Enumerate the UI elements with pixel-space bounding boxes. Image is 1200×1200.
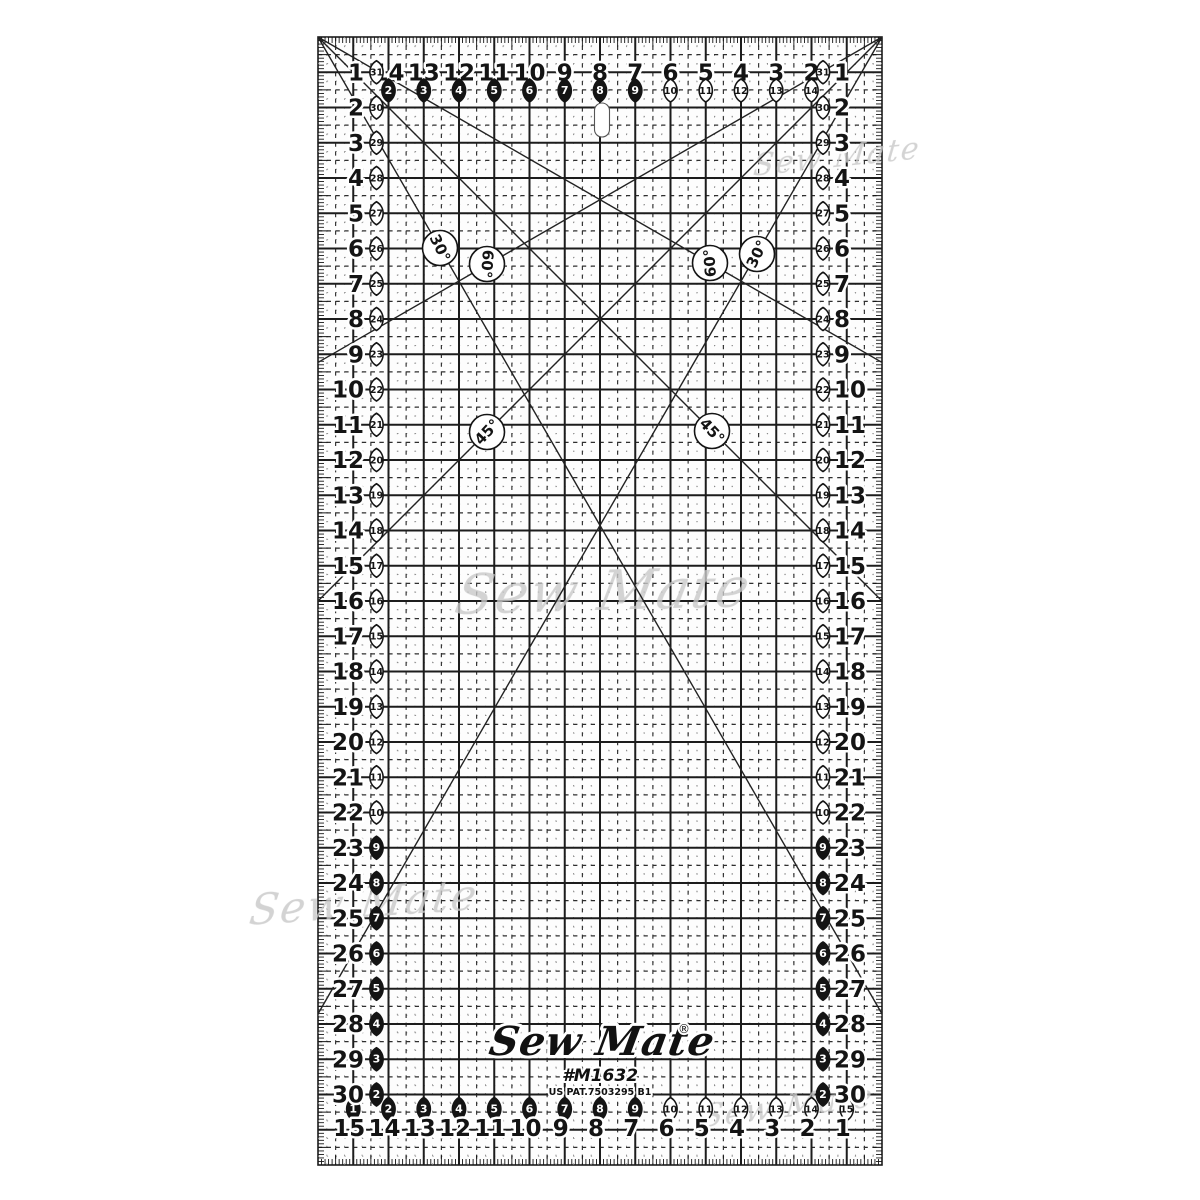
- scale-number: 7: [348, 272, 364, 298]
- badge-value: 20: [816, 455, 830, 466]
- scale-number: 30: [834, 1083, 866, 1109]
- badge-value: 31: [370, 68, 383, 79]
- badge-value: 3: [819, 1053, 827, 1066]
- scale-number: 3: [834, 131, 850, 157]
- badge-value: 4: [455, 1102, 463, 1115]
- scale-number: 20: [332, 730, 364, 756]
- scale-number: 4: [348, 166, 364, 192]
- scale-badge: 10: [370, 801, 384, 824]
- badge-value: 2: [385, 1102, 393, 1115]
- scale-badge: 5: [816, 977, 829, 1000]
- scale-badge: 15: [370, 625, 383, 648]
- scale-badge: 25: [816, 272, 829, 295]
- scale-number: 7: [834, 272, 850, 298]
- scale-number: 5: [834, 201, 850, 227]
- badge-value: 19: [370, 491, 383, 502]
- scale-badge: 19: [370, 484, 383, 507]
- badge-value: 13: [770, 86, 783, 97]
- scale-badge: 2: [370, 1083, 383, 1106]
- badge-value: 17: [816, 561, 829, 572]
- badge-value: 23: [370, 350, 383, 361]
- scale-badge: 11: [370, 766, 383, 789]
- scale-badge: 27: [816, 202, 829, 225]
- scale-badge: 8: [593, 79, 606, 102]
- badge-value: 21: [816, 420, 829, 431]
- scale-badge: 21: [816, 413, 829, 436]
- badge-value: 29: [370, 138, 383, 149]
- badge-value: 14: [805, 86, 819, 97]
- scale-number: 24: [834, 871, 866, 897]
- scale-badge: 4: [816, 1013, 829, 1036]
- badge-value: 10: [664, 1104, 678, 1115]
- badge-value: 12: [734, 1104, 747, 1115]
- badge-value: 14: [370, 667, 384, 678]
- scale-number: 13: [332, 483, 364, 509]
- badge-value: 16: [370, 596, 384, 607]
- badge-value: 27: [816, 209, 829, 220]
- scale-badge: 22: [370, 378, 383, 401]
- scale-number: 22: [834, 801, 866, 827]
- badge-value: 25: [370, 279, 383, 290]
- badge-value: 4: [819, 1017, 827, 1030]
- scale-badge: 14: [370, 660, 384, 683]
- scale-number: 1: [348, 60, 364, 86]
- badge-value: 9: [631, 84, 639, 97]
- scale-number: 30: [332, 1083, 364, 1109]
- scale-number: 28: [332, 1012, 364, 1038]
- badge-value: 24: [816, 314, 830, 325]
- badge-value: 11: [699, 1104, 712, 1115]
- scale-number: 6: [834, 237, 850, 263]
- scale-number: 5: [348, 201, 364, 227]
- scale-number: 9: [834, 342, 850, 368]
- badge-value: 10: [370, 808, 384, 819]
- badge-value: 13: [816, 702, 829, 713]
- scale-badge: 20: [370, 449, 384, 472]
- scale-number: 8: [588, 1116, 604, 1142]
- badge-value: 9: [819, 841, 827, 854]
- scale-badge: 26: [816, 237, 830, 260]
- scale-number: 15: [332, 554, 364, 580]
- angle-badge-60-right: 60°: [693, 246, 728, 281]
- scale-number: 29: [332, 1047, 364, 1073]
- badge-value: 14: [805, 1104, 819, 1115]
- badge-value: 25: [816, 279, 829, 290]
- scale-number: 12: [439, 1116, 471, 1142]
- scale-badge: 10: [816, 801, 830, 824]
- badge-value: 8: [596, 1102, 604, 1115]
- scale-badge: 17: [816, 554, 829, 577]
- scale-number: 2: [799, 1116, 815, 1142]
- scale-number: 14: [368, 1116, 400, 1142]
- scale-badge: 5: [488, 79, 501, 102]
- scale-badge: 31: [370, 61, 383, 84]
- scale-badge: 3: [370, 1048, 383, 1071]
- scale-number: 21: [332, 765, 364, 791]
- badge-value: 2: [373, 1088, 381, 1101]
- scale-badge: 24: [370, 308, 384, 331]
- scale-badge: 4: [370, 1013, 383, 1036]
- badge-value: 26: [370, 244, 384, 255]
- scale-badge: 31: [816, 61, 829, 84]
- scale-number: 13: [834, 483, 866, 509]
- scale-number: 17: [834, 624, 866, 650]
- badge-value: 7: [819, 912, 827, 925]
- scale-badge: 26: [370, 237, 384, 260]
- badge-value: 19: [816, 491, 829, 502]
- scale-number: 2: [834, 96, 850, 122]
- scale-number: 13: [404, 1116, 436, 1142]
- scale-badge: 29: [370, 131, 383, 154]
- scale-badge: 16: [370, 590, 384, 613]
- scale-badge: 6: [523, 79, 536, 102]
- scale-badge: 2: [382, 79, 395, 102]
- scale-number: 14: [332, 519, 364, 545]
- badge-value: 13: [770, 1104, 783, 1115]
- badge-value: 16: [816, 596, 830, 607]
- scale-number: 7: [623, 1116, 639, 1142]
- scale-badge: 13: [816, 695, 829, 718]
- scale-badge: 23: [816, 343, 829, 366]
- patent-number: US PAT.7503295 B1: [549, 1087, 652, 1098]
- scale-badge: 11: [816, 766, 829, 789]
- scale-number: 4: [729, 1116, 745, 1142]
- scale-number: 20: [834, 730, 866, 756]
- scale-badge: 5: [370, 977, 383, 1000]
- badge-value: 2: [385, 84, 393, 97]
- scale-badge: 6: [370, 942, 383, 965]
- scale-number: 25: [332, 906, 364, 932]
- badge-value: 6: [819, 947, 827, 960]
- scale-badge: 2: [816, 1083, 829, 1106]
- badge-value: 5: [819, 982, 827, 995]
- scale-number: 17: [332, 624, 364, 650]
- badge-value: 5: [373, 982, 381, 995]
- scale-number: 27: [332, 977, 364, 1003]
- scale-number: 10: [332, 378, 364, 404]
- scale-badge: 25: [370, 272, 383, 295]
- scale-badge: 22: [816, 378, 829, 401]
- scale-number: 27: [834, 977, 866, 1003]
- scale-number: 19: [834, 695, 866, 721]
- scale-number: 18: [834, 660, 866, 686]
- badge-value: 17: [370, 561, 383, 572]
- scale-badge: 12: [370, 731, 383, 754]
- scale-number: 16: [332, 589, 364, 615]
- badge-value: 23: [816, 350, 829, 361]
- badge-value: 7: [561, 84, 569, 97]
- badge-value: 3: [420, 1102, 428, 1115]
- badge-value: 21: [370, 420, 383, 431]
- badge-value: 8: [596, 84, 604, 97]
- badge-value: 7: [561, 1102, 569, 1115]
- scale-badge: 12: [734, 79, 747, 102]
- scale-number: 2: [348, 96, 364, 122]
- scale-badge: 15: [816, 625, 829, 648]
- scale-number: 3: [348, 131, 364, 157]
- angle-badge-45-left: 45°: [470, 415, 505, 450]
- badge-value: 4: [373, 1017, 381, 1030]
- badge-value: 10: [816, 808, 830, 819]
- angle-badge-45-right: 45°: [695, 414, 730, 449]
- badge-value: 15: [816, 632, 829, 643]
- scale-badge: 6: [816, 942, 829, 965]
- scale-number: 6: [658, 1116, 674, 1142]
- angle-value: 60°: [700, 248, 720, 278]
- scale-number: 28: [834, 1012, 866, 1038]
- scale-badge: 3: [816, 1048, 829, 1071]
- badge-value: 8: [819, 876, 827, 889]
- scale-badge: 9: [629, 79, 642, 102]
- scale-badge: 8: [370, 872, 383, 895]
- badge-value: 4: [455, 84, 463, 97]
- badge-value: 3: [420, 84, 428, 97]
- angle-badge-30-left: 30°: [423, 231, 458, 266]
- angle-value: 60°: [477, 249, 497, 279]
- badge-value: 5: [490, 1102, 498, 1115]
- scale-number: 21: [834, 765, 866, 791]
- badge-value: 2: [819, 1088, 827, 1101]
- badge-value: 11: [370, 773, 383, 784]
- badge-value: 6: [526, 84, 534, 97]
- scale-number: 16: [834, 589, 866, 615]
- scale-badge: 24: [816, 308, 830, 331]
- scale-number: 9: [553, 1116, 569, 1142]
- scale-badge: 28: [816, 167, 830, 190]
- scale-number: 1: [835, 1116, 851, 1142]
- badge-value: 9: [373, 841, 381, 854]
- scale-number: 8: [348, 307, 364, 333]
- scale-number: 10: [834, 378, 866, 404]
- angle-badge-60-left: 60°: [470, 247, 505, 282]
- scale-number: 22: [332, 801, 364, 827]
- badge-value: 22: [816, 385, 829, 396]
- scale-number: 15: [333, 1116, 365, 1142]
- scale-badge: 7: [816, 907, 829, 930]
- scale-number: 23: [332, 836, 364, 862]
- scale-number: 26: [332, 942, 364, 968]
- scale-number: 11: [474, 1116, 506, 1142]
- scale-number: 14: [834, 519, 866, 545]
- registered-mark: ®: [678, 1022, 690, 1036]
- badge-value: 8: [373, 876, 381, 889]
- scale-badge: 9: [816, 836, 829, 859]
- badge-value: 6: [373, 947, 381, 960]
- scale-number: 11: [834, 413, 866, 439]
- badge-value: 12: [734, 86, 747, 97]
- badge-value: 9: [631, 1102, 639, 1115]
- badge-value: 28: [370, 173, 384, 184]
- product-photo: Sew Mate Sew MateSew MateSew MateSew Mat…: [0, 0, 1200, 1200]
- scale-badge: 19: [816, 484, 829, 507]
- scale-badge: 18: [816, 519, 830, 542]
- badge-value: 10: [664, 86, 678, 97]
- scale-number: 23: [834, 836, 866, 862]
- badge-value: 14: [816, 667, 830, 678]
- scale-number: 24: [332, 871, 364, 897]
- badge-value: 18: [370, 526, 384, 537]
- scale-badge: 4: [452, 79, 465, 102]
- scale-badge: 18: [370, 519, 384, 542]
- badge-value: 31: [816, 68, 829, 79]
- hang-hole: [595, 103, 610, 137]
- badge-value: 29: [816, 138, 829, 149]
- scale-number: 26: [834, 942, 866, 968]
- scale-badge: 30: [370, 96, 384, 119]
- badge-value: 12: [370, 737, 383, 748]
- badge-value: 28: [816, 173, 830, 184]
- scale-badge: 23: [370, 343, 383, 366]
- scale-badge: 7: [558, 79, 571, 102]
- scale-badge: 27: [370, 202, 383, 225]
- scale-number: 6: [348, 237, 364, 263]
- scale-badge: 10: [664, 79, 678, 102]
- scale-badge: 20: [816, 449, 830, 472]
- scale-number: 10: [509, 1116, 541, 1142]
- badge-value: 11: [816, 773, 829, 784]
- scale-number: 4: [834, 166, 850, 192]
- scale-badge: 29: [816, 131, 829, 154]
- badge-value: 30: [816, 103, 830, 114]
- badge-value: 11: [699, 86, 712, 97]
- scale-number: 15: [834, 554, 866, 580]
- scale-badge: 16: [816, 590, 830, 613]
- scale-number: 11: [332, 413, 364, 439]
- scale-badge: 21: [370, 413, 383, 436]
- badge-value: 5: [490, 84, 498, 97]
- scale-number: 12: [332, 448, 364, 474]
- badge-value: 27: [370, 209, 383, 220]
- scale-badge: 9: [370, 836, 383, 859]
- badge-value: 6: [526, 1102, 534, 1115]
- scale-number: 1: [834, 60, 850, 86]
- badge-value: 18: [816, 526, 830, 537]
- badge-value: 20: [370, 455, 384, 466]
- badge-value: 30: [370, 103, 384, 114]
- scale-number: 12: [834, 448, 866, 474]
- scale-number: 3: [764, 1116, 780, 1142]
- scale-badge: 12: [816, 731, 829, 754]
- scale-badge: 3: [417, 79, 430, 102]
- badge-value: 12: [816, 737, 829, 748]
- badge-value: 24: [370, 314, 384, 325]
- model-number: #M1632: [562, 1066, 638, 1086]
- watermark-center: Sew Mate: [450, 555, 756, 627]
- scale-number: 5: [694, 1116, 710, 1142]
- badge-value: 22: [370, 385, 383, 396]
- scale-badge: 11: [699, 79, 712, 102]
- scale-badge: 13: [770, 79, 783, 102]
- scale-number: 25: [834, 906, 866, 932]
- scale-badge: 8: [816, 872, 829, 895]
- scale-number: 19: [332, 695, 364, 721]
- badge-value: 3: [373, 1053, 381, 1066]
- scale-badge: 14: [816, 660, 830, 683]
- angle-badge-30-right: 30°: [740, 237, 775, 272]
- quilting-ruler: Sew Mate Sew MateSew MateSew MateSew Mat…: [0, 0, 1200, 1200]
- scale-badge: 17: [370, 554, 383, 577]
- scale-badge: 7: [370, 907, 383, 930]
- scale-number: 8: [834, 307, 850, 333]
- badge-value: 15: [370, 632, 383, 643]
- scale-number: 9: [348, 342, 364, 368]
- scale-number: 18: [332, 660, 364, 686]
- badge-value: 26: [816, 244, 830, 255]
- scale-badge: 14: [805, 79, 819, 102]
- scale-number: 29: [834, 1047, 866, 1073]
- scale-badge: 28: [370, 167, 384, 190]
- scale-badge: 13: [370, 695, 383, 718]
- scale-badge: 30: [816, 96, 830, 119]
- badge-value: 13: [370, 702, 383, 713]
- badge-value: 7: [373, 912, 381, 925]
